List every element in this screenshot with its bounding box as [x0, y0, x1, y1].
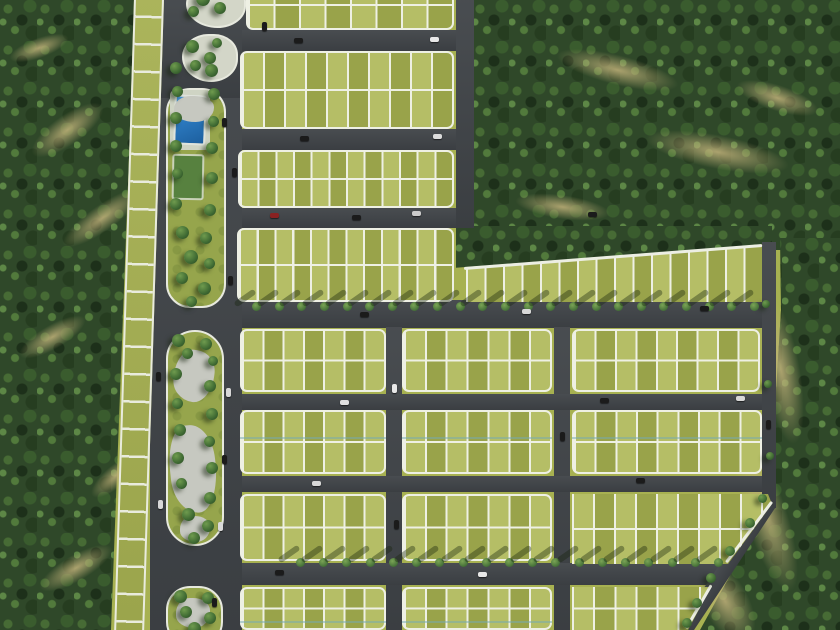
tree [200, 338, 212, 350]
tree [172, 168, 183, 179]
road-r5 [242, 394, 762, 410]
tree [206, 408, 218, 420]
water-line [402, 437, 552, 439]
car [228, 276, 233, 285]
tree [204, 204, 216, 216]
tree [692, 598, 702, 608]
car [232, 168, 237, 177]
car [736, 396, 745, 401]
tree [176, 272, 188, 284]
tree [758, 494, 767, 503]
water-line [240, 621, 386, 623]
tree [204, 492, 216, 504]
tree [206, 462, 218, 474]
car [412, 211, 421, 216]
tree [172, 334, 185, 347]
car [275, 570, 284, 575]
tree [208, 356, 218, 366]
water-line [402, 621, 552, 623]
car [262, 22, 267, 31]
block-b4 [402, 587, 552, 630]
car [300, 136, 309, 141]
tree [172, 86, 183, 97]
road-boundary-north [762, 242, 776, 508]
block-t1 [246, 0, 454, 30]
tree [170, 368, 182, 380]
car [218, 522, 223, 531]
tree [182, 508, 195, 521]
tree [766, 452, 774, 460]
tree [202, 520, 214, 532]
tree [212, 38, 222, 48]
block-c1 [572, 329, 760, 392]
water-line [572, 437, 762, 439]
car [156, 372, 161, 381]
tree [170, 140, 182, 152]
street-tree-icon [750, 302, 759, 311]
car [360, 312, 369, 317]
tree [200, 232, 212, 244]
car [340, 400, 349, 405]
tree [214, 2, 226, 14]
tree [184, 250, 198, 264]
block-a4 [240, 587, 386, 630]
car [433, 134, 442, 139]
tree [745, 518, 755, 528]
water-line [240, 437, 386, 439]
car [312, 481, 321, 486]
tree [208, 116, 219, 127]
tree [188, 532, 200, 544]
tree [204, 52, 216, 64]
tree [174, 590, 187, 603]
car [270, 213, 279, 218]
tree [204, 258, 215, 269]
tree [706, 573, 716, 583]
street-tree-icon [714, 558, 723, 567]
block-b1 [402, 329, 552, 392]
tree [174, 424, 186, 436]
tree [762, 300, 770, 308]
block-a2 [240, 410, 386, 474]
tree [186, 40, 199, 53]
tree [172, 398, 183, 409]
tree [188, 622, 201, 630]
masterplan-aerial-view [0, 0, 840, 630]
tree [170, 62, 182, 74]
tree [208, 88, 220, 100]
car [522, 309, 531, 314]
car [352, 215, 361, 220]
tree [206, 172, 218, 184]
car [158, 500, 163, 509]
tree [725, 546, 735, 556]
block-b2 [402, 410, 552, 474]
car [394, 520, 399, 529]
block-t3 [238, 150, 454, 208]
car [766, 420, 771, 429]
tree [198, 282, 211, 295]
tree [204, 612, 216, 624]
car [636, 478, 645, 483]
car [430, 37, 439, 42]
tree [182, 348, 193, 359]
tree [170, 198, 182, 210]
car [600, 398, 609, 403]
car [700, 306, 709, 311]
car [478, 572, 487, 577]
tree [205, 64, 218, 77]
tree [176, 226, 189, 239]
car [222, 118, 227, 127]
block-a1 [240, 329, 386, 392]
car [226, 388, 231, 397]
road-v2 [456, 0, 474, 228]
tree [682, 618, 692, 628]
block-c2 [572, 410, 762, 474]
tree [186, 296, 197, 307]
road-r2 [242, 129, 464, 150]
block-t2 [240, 51, 454, 129]
car [588, 212, 597, 217]
car [222, 455, 227, 464]
tree [172, 452, 184, 464]
tree [176, 478, 187, 489]
tree [764, 380, 772, 388]
tree [188, 6, 199, 17]
tree [170, 112, 182, 124]
car [212, 598, 217, 607]
tree [204, 380, 216, 392]
tree [180, 606, 192, 618]
tree [190, 60, 201, 71]
tree [206, 142, 218, 154]
car [560, 432, 565, 441]
car [392, 384, 397, 393]
car [294, 38, 303, 43]
tree [204, 436, 215, 447]
